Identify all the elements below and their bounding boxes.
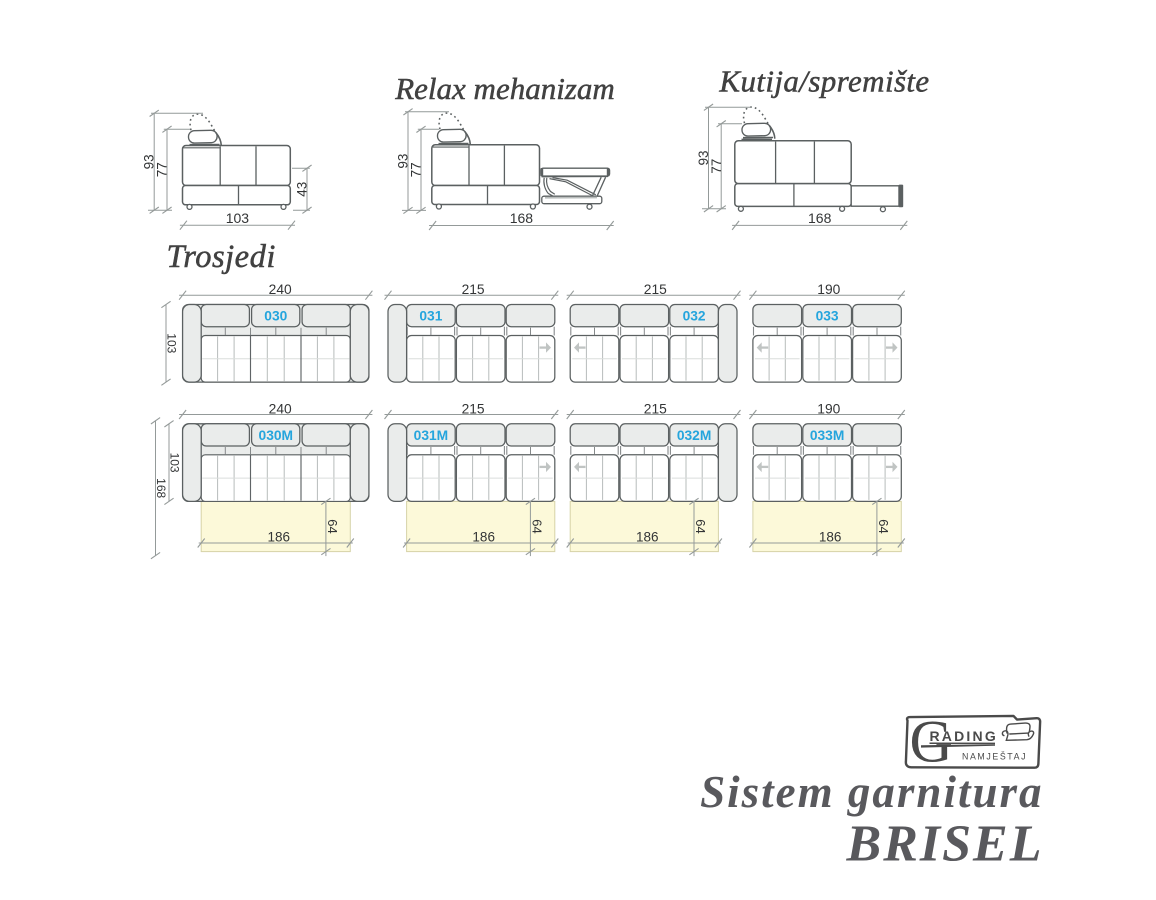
svg-text:Kutija/spremište: Kutija/spremište [718, 64, 929, 99]
svg-text:186: 186 [472, 529, 495, 544]
svg-text:240: 240 [269, 282, 292, 297]
svg-text:215: 215 [462, 282, 485, 297]
svg-text:Sistem garnitura: Sistem garnitura [700, 767, 1043, 817]
svg-text:BRISEL: BRISEL [846, 816, 1044, 873]
svg-text:77: 77 [709, 159, 724, 174]
svg-text:103: 103 [168, 453, 182, 473]
svg-text:240: 240 [269, 401, 292, 416]
svg-text:168: 168 [154, 478, 168, 498]
svg-text:77: 77 [155, 162, 170, 177]
svg-text:NAMJEŠTAJ: NAMJEŠTAJ [962, 751, 1027, 761]
svg-text:103: 103 [226, 210, 250, 226]
svg-text:215: 215 [644, 401, 667, 416]
svg-text:RADING: RADING [930, 728, 998, 744]
svg-text:Relax mehanizam: Relax mehanizam [394, 71, 615, 106]
svg-text:190: 190 [817, 401, 840, 416]
svg-text:032M: 032M [677, 428, 712, 443]
svg-text:103: 103 [165, 333, 179, 353]
svg-text:190: 190 [817, 282, 840, 297]
svg-text:186: 186 [819, 529, 842, 544]
svg-text:031M: 031M [414, 428, 449, 443]
svg-text:030M: 030M [259, 428, 294, 443]
svg-text:031: 031 [419, 309, 442, 324]
svg-text:186: 186 [636, 529, 659, 544]
svg-text:215: 215 [644, 282, 667, 297]
svg-text:64: 64 [693, 519, 708, 533]
svg-text:77: 77 [409, 162, 424, 177]
svg-text:030: 030 [264, 309, 287, 324]
svg-text:032: 032 [683, 309, 706, 324]
svg-text:Trosjedi: Trosjedi [167, 239, 276, 275]
svg-text:168: 168 [510, 210, 534, 226]
svg-text:64: 64 [529, 519, 544, 533]
svg-text:215: 215 [462, 401, 485, 416]
svg-text:033: 033 [816, 309, 839, 324]
svg-text:43: 43 [294, 182, 309, 197]
svg-text:168: 168 [808, 210, 832, 226]
svg-text:033M: 033M [810, 428, 845, 443]
svg-text:186: 186 [268, 529, 291, 544]
svg-text:64: 64 [876, 519, 891, 533]
svg-text:64: 64 [325, 519, 340, 533]
